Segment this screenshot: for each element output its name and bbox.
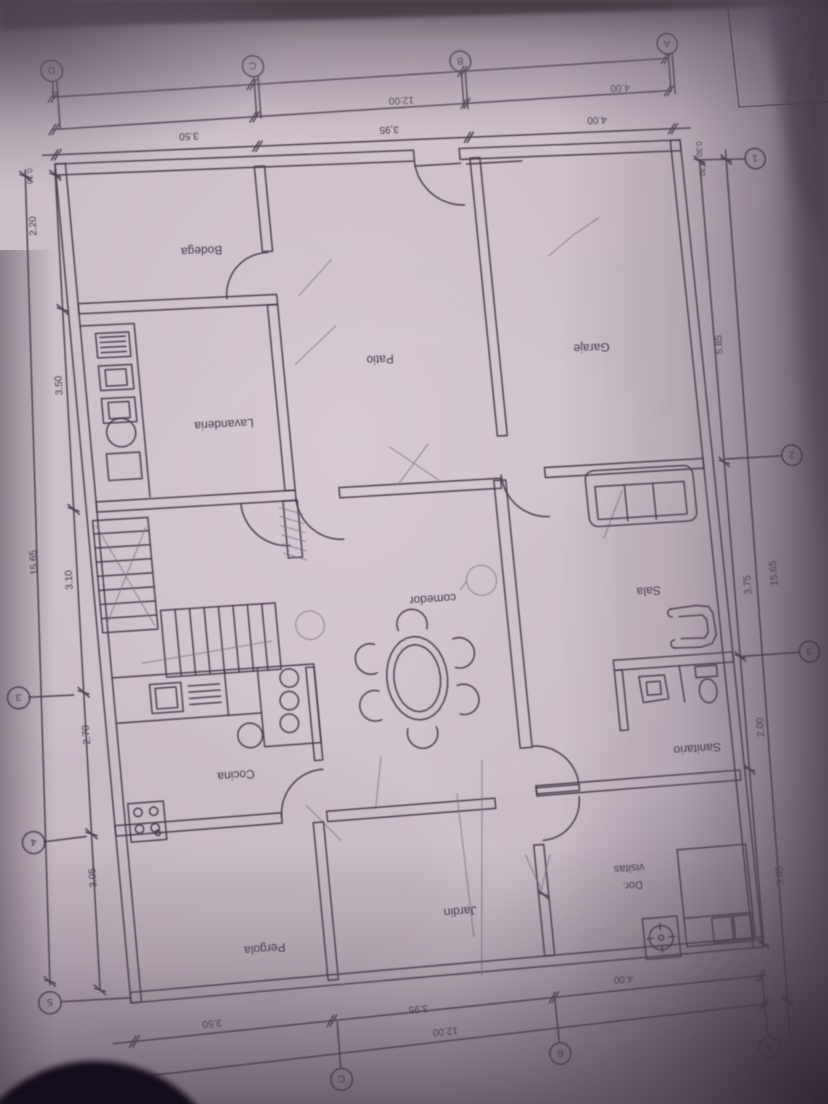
- svg-text:2.20: 2.20: [28, 216, 40, 236]
- svg-text:Bodega: Bodega: [180, 243, 222, 259]
- svg-text:3.10: 3.10: [64, 569, 76, 590]
- svg-text:3.50: 3.50: [53, 375, 65, 395]
- svg-text:Cocina: Cocina: [217, 767, 256, 784]
- svg-text:Patio: Patio: [366, 352, 394, 367]
- svg-text:2.70: 2.70: [81, 724, 93, 745]
